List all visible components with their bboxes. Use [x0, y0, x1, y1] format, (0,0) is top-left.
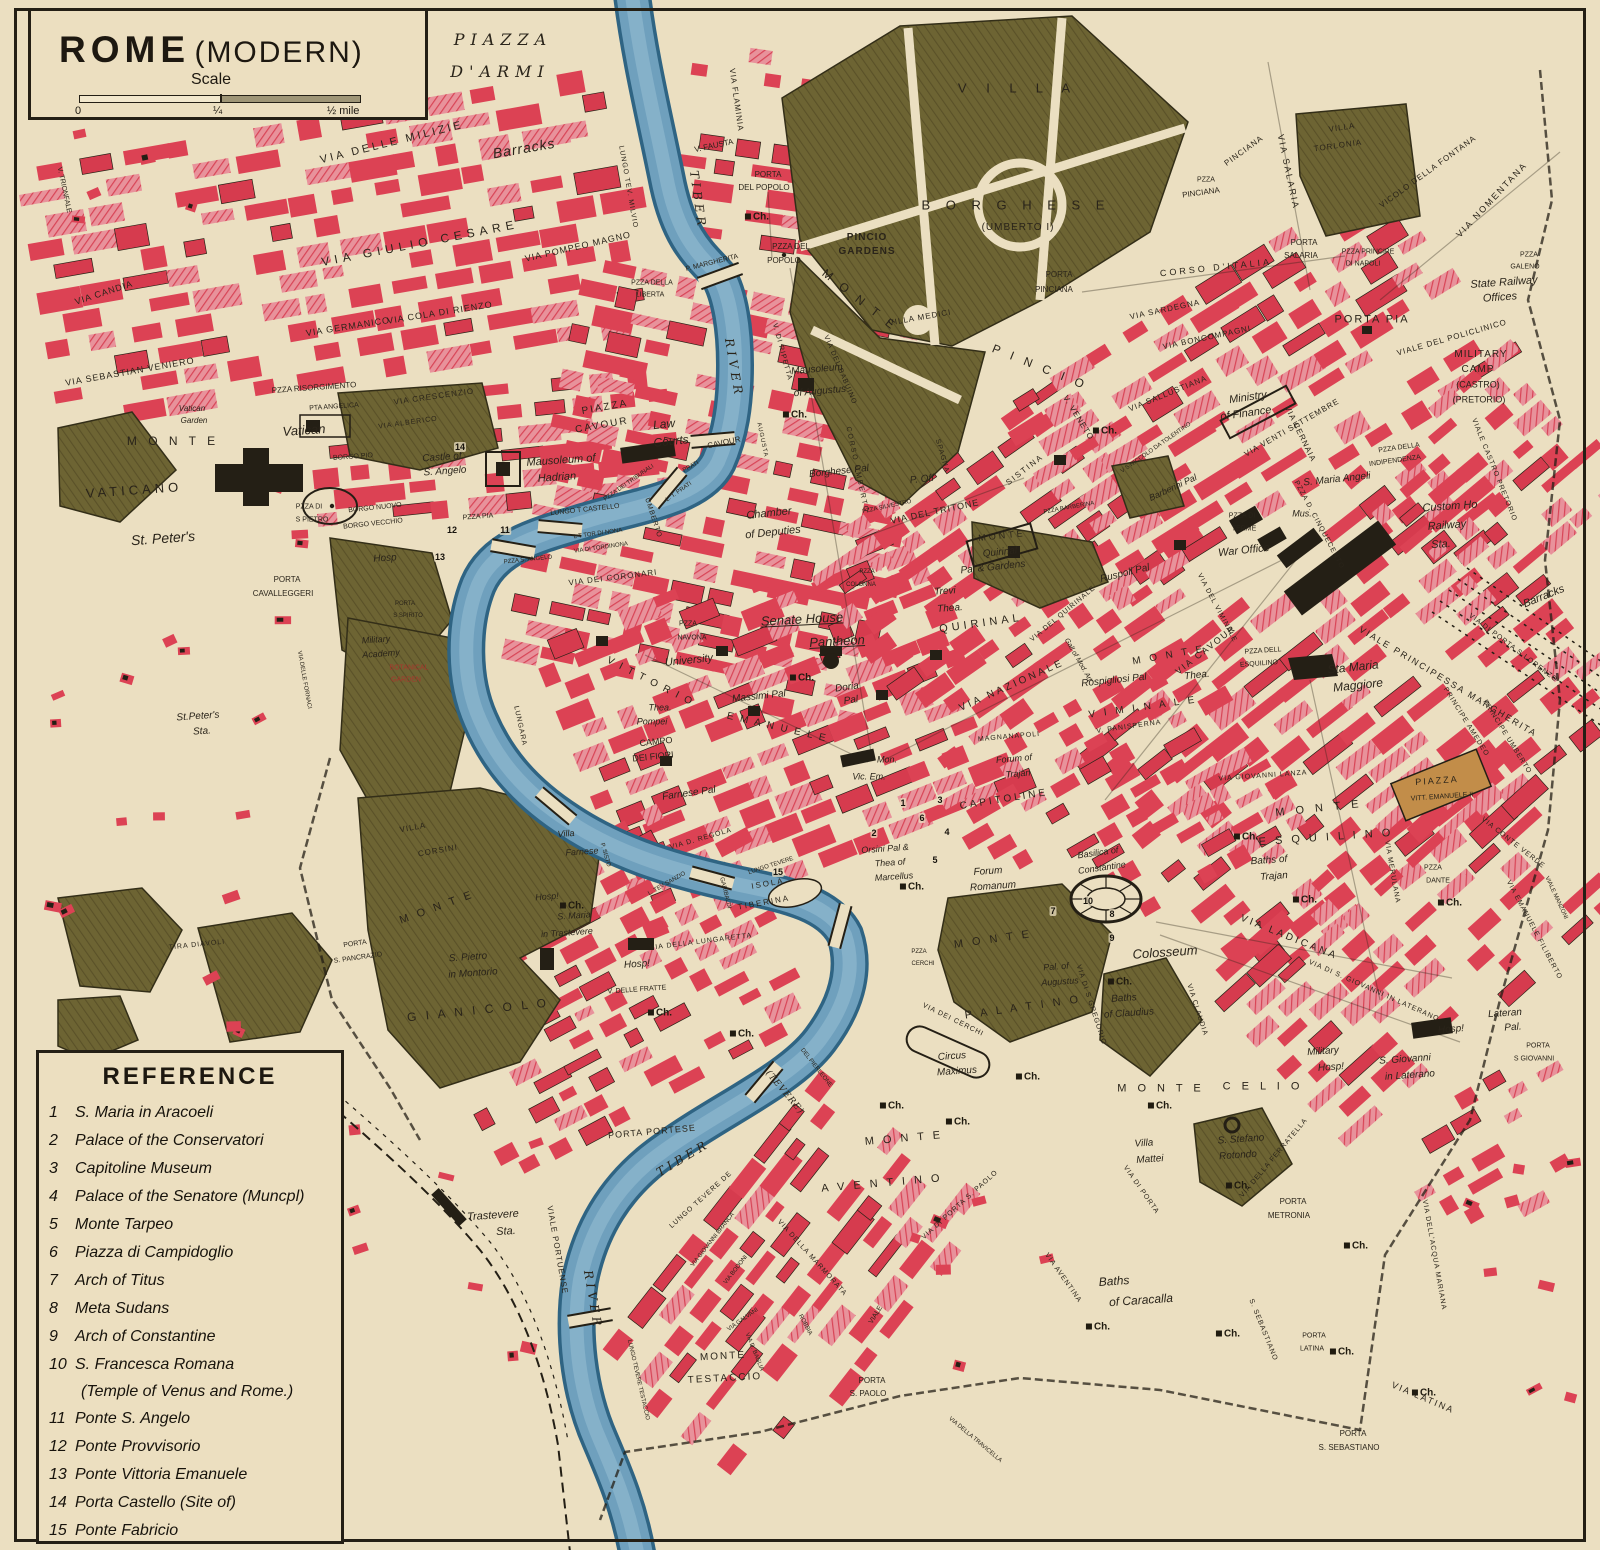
map-label: Chamber	[746, 506, 792, 522]
map-label: V. TRIONFALE	[56, 166, 73, 213]
map-label: VIA GIOVANNI LANZA	[1218, 769, 1307, 782]
map-label: PZZA S. ANGELO	[503, 554, 552, 565]
church-mark: Ch.	[790, 673, 814, 684]
map-label: VIA DELL'ACQUA MARIANA	[1421, 1199, 1447, 1311]
map-label: Villa	[1134, 1138, 1153, 1149]
map-label: Thea.	[648, 704, 671, 713]
map-label: PRATI	[682, 460, 700, 474]
map-label: PZZA	[859, 569, 874, 575]
map-label: VIA CLAUDIA	[1185, 983, 1208, 1037]
map-label: PORTA	[1291, 239, 1318, 247]
map-label: VIA DELLE FORNACI	[296, 651, 312, 710]
map-label: PZZA	[1424, 865, 1442, 872]
map-label: PZZA DEL	[772, 243, 810, 251]
map-label: VIA GALVANI	[726, 1307, 759, 1333]
map-label: Hosp!	[1318, 1062, 1345, 1074]
reference-item: 15Ponte Fabricio	[49, 1517, 331, 1545]
map-label: LIBERTA	[636, 292, 665, 299]
map-label: in Trastevere	[541, 927, 593, 940]
church-mark: Ch.	[1148, 1101, 1172, 1112]
map-label: AUGUSTA	[755, 422, 768, 458]
map-label: Hosp!	[535, 892, 559, 903]
church-mark: Ch.	[648, 1008, 672, 1019]
reference-item-number: 8	[49, 1295, 75, 1323]
map-label: St. Peter's	[131, 529, 196, 547]
map-label: Baths of	[1250, 855, 1287, 868]
map-label: P A L A T I N O	[964, 994, 1082, 1021]
reference-item: 11Ponte S. Angelo	[49, 1405, 331, 1433]
map-label: CAVOUR	[707, 436, 742, 451]
map-label: St.Peter's	[176, 711, 220, 724]
map-label: Basilica of	[1077, 846, 1119, 861]
map-label: V. DI RIPETTA	[771, 323, 793, 382]
map-label: B O R G H E S E	[922, 199, 1111, 212]
scale-label: Scale	[191, 71, 231, 89]
map-label: D'ARMI	[450, 64, 550, 80]
map-label: Hosp	[373, 553, 397, 565]
map-label: Trajan	[1260, 871, 1288, 883]
map-label: PORTA	[343, 939, 367, 949]
map-label: P. MARGHERITA	[685, 253, 739, 273]
map-label: Courts	[653, 433, 689, 449]
map-label: Mon.	[877, 756, 897, 765]
reference-item-label: Porta Castello (Site of)	[75, 1489, 331, 1517]
map-label: METRONIA	[1268, 1212, 1310, 1220]
map-label: Military	[1307, 1046, 1339, 1058]
map-label: S SPIRITO	[393, 613, 423, 619]
map-label: S. Pietro	[449, 952, 488, 965]
church-mark: Ch.	[900, 882, 924, 893]
map-label: S. SEBASTIANO	[1319, 1444, 1380, 1452]
map-label: Military	[361, 635, 390, 646]
map-label: Lateran	[1488, 1008, 1523, 1020]
reference-box: REFERENCE 1S. Maria in Aracoeli2Palace o…	[36, 1050, 344, 1544]
map-label: PZZA	[911, 949, 926, 955]
map-label: POPOLO	[767, 257, 801, 265]
map-label: VIA POMPEO MAGNO	[524, 230, 632, 263]
map-label: COLONNA	[846, 582, 876, 588]
map-label: S. Maria	[557, 910, 591, 921]
map-label: Trajan	[1005, 768, 1031, 779]
scale-tick-half-mile: ½ mile	[327, 105, 359, 117]
map-label: Barberini Pal	[1148, 473, 1199, 503]
map-label: S. PAOLO	[850, 1390, 887, 1398]
map-label: TIBER	[688, 170, 708, 230]
reference-item: 5Monte Tarpeo	[49, 1211, 331, 1239]
reference-item-label: S. Francesca Romana	[75, 1351, 331, 1379]
map-label: VIA GERMANICO	[305, 316, 390, 338]
church-mark: Ch.	[1086, 1322, 1110, 1333]
map-label: PZZA RISORGIMENTO	[271, 381, 356, 395]
map-label: DEL PIERLEONE	[799, 1047, 833, 1088]
map-label: Trevi	[934, 586, 956, 597]
map-label: Constantine	[1078, 860, 1127, 876]
map-label: VIA NAZIONALE	[958, 658, 1066, 714]
map-label: M O N T E	[1117, 1084, 1205, 1095]
map-label: VILLA MEDICI	[888, 309, 952, 328]
reference-item: 3Capitoline Museum	[49, 1155, 331, 1183]
map-label: S. SEBASTIANO	[1247, 1298, 1278, 1362]
map-label: Pal	[843, 695, 859, 707]
reference-item: 1S. Maria in Aracoeli	[49, 1099, 331, 1127]
map-label: VIA DI S. GIOVANNI IN LATERANO	[1308, 959, 1441, 1023]
map-label: L T TOR DI NONA	[573, 528, 622, 541]
reference-item-number: 7	[49, 1267, 75, 1295]
map-label: Vatican	[282, 422, 326, 438]
map-label: LUNGO T CASTELLO	[550, 503, 620, 517]
map-label: (UMBERTO I)	[982, 223, 1055, 233]
map-label: Forum of	[996, 753, 1033, 765]
map-label: Forum	[973, 866, 1003, 878]
map-label: P I N C I O	[991, 342, 1090, 391]
map-label: Castle of	[422, 452, 462, 465]
map-label: of Claudius	[1104, 1007, 1155, 1020]
map-label: in Laterano	[1385, 1069, 1436, 1082]
map-label: VIA SEBASTIAN VENIERO	[65, 356, 196, 388]
reference-item: 9Arch of Constantine	[49, 1323, 331, 1351]
reference-number-marker: 13	[434, 552, 446, 562]
map-label: L. TEV SANZIO	[647, 871, 687, 897]
map-label: Sta.	[496, 1226, 516, 1238]
map-label: of Finance	[1220, 405, 1272, 423]
map-label: VIALE	[868, 1305, 884, 1326]
map-label: M O N T E	[1275, 799, 1363, 819]
map-label: PINCIANA	[1182, 186, 1221, 199]
map-label: PIAZZA	[454, 32, 552, 48]
map-label: E S Q U I L I N O	[1258, 828, 1393, 848]
reference-number-marker: 14	[454, 442, 466, 452]
map-label: LUNGO TEVERE TESTACCIO	[626, 1339, 650, 1421]
map-label: V. PANISPERNA	[1096, 719, 1162, 735]
map-label: PZZA DELLA	[1378, 442, 1420, 455]
map-label: CAVALLEGGERI	[253, 590, 314, 598]
map-label: VIA FLAMINIA	[728, 68, 745, 132]
map-label: VIA BONCOMPAGNI	[1162, 325, 1252, 352]
map-label: M O N T E	[953, 929, 1032, 951]
map-label: VIA COLA DI RIENZO	[387, 300, 494, 326]
map-label: PZZA DI	[1229, 513, 1255, 520]
church-mark: Ch.	[730, 1029, 754, 1040]
map-label: VIA CRESCENZIO	[393, 387, 474, 406]
map-label: BORGO VECCHIO	[343, 517, 403, 530]
map-label: S. Maria Angeli	[1303, 472, 1371, 489]
map-label: Thea of	[874, 857, 905, 868]
map-label: S. Angelo	[423, 466, 467, 479]
reference-item-label: Arch of Titus	[75, 1267, 331, 1295]
church-mark: Ch.	[1438, 898, 1462, 909]
church-mark: Ch.	[1344, 1241, 1368, 1252]
map-label: Maximus	[937, 1066, 978, 1079]
map-label: VIA DEI CORONARI	[568, 569, 658, 588]
reference-item-label: Ponte Vittoria Emanuele	[75, 1461, 331, 1489]
map-title: ROME	[59, 29, 190, 70]
reference-item: 4Palace of the Senatore (Muncpl)	[49, 1183, 331, 1211]
map-label: ISOLA	[751, 877, 785, 891]
reference-number-marker: 12	[446, 525, 458, 535]
map-label: TESTACCIO	[688, 1372, 763, 1386]
map-label: ROBBIA	[797, 1314, 813, 1337]
map-label: Pal. of	[1043, 962, 1069, 973]
reference-item-label: Palace of the Conservatori	[75, 1127, 331, 1155]
map-label: PINCIANA	[1223, 134, 1265, 167]
map-label: PTA ANGELICA	[309, 402, 359, 412]
map-label: Thea.	[937, 603, 963, 615]
map-label: CAMP	[1462, 365, 1495, 375]
map-label: S. Stefano	[1217, 1133, 1264, 1146]
church-mark: Ch.	[1016, 1072, 1040, 1083]
map-label: V S NICCOLO DA TOLENTINO	[1120, 421, 1192, 474]
map-label: NAVONA	[677, 635, 706, 642]
map-label: Quirinal	[982, 546, 1017, 560]
map-label: PZZA DELL	[1244, 646, 1281, 656]
map-label: TERME	[1232, 526, 1257, 533]
reference-item-label: Monte Tarpeo	[75, 1211, 331, 1239]
reference-number-marker: 2	[870, 828, 877, 838]
reference-number-marker: 1	[899, 798, 906, 808]
map-label: PZZA DI	[296, 504, 322, 511]
map-label: V. VENETO	[1061, 394, 1095, 441]
map-label: PINCIANA	[1035, 286, 1073, 294]
church-mark: Ch.	[1226, 1181, 1250, 1192]
reference-item-label: Arch of Constantine	[75, 1323, 331, 1351]
map-label: Garden	[181, 417, 208, 425]
map-label: QUIRINAL	[939, 613, 1024, 636]
map-label: VIA SARDEGNA	[1129, 299, 1201, 322]
map-label: VIA GIOVANNI BRANCA	[690, 1212, 736, 1268]
reference-item-number: 10	[49, 1351, 75, 1379]
map-label: Barracks	[1522, 584, 1566, 610]
map-label: V. DELLE FRATTE	[607, 984, 666, 995]
scale-tick-0: 0	[75, 105, 81, 117]
map-label: Pompei	[637, 718, 668, 727]
map-label: Rotondo	[1219, 1150, 1257, 1163]
map-label: of Caracalla	[1109, 1292, 1174, 1308]
map-label: M O N T E	[127, 435, 219, 447]
map-label: Ruspoli Pal	[1099, 563, 1151, 585]
map-label: VIALE PORTUENSE	[545, 1205, 568, 1295]
map-label: GARDENS	[838, 247, 895, 257]
map-label: DEI FIORI	[632, 750, 674, 763]
map-label: PZZA BARBERINA	[1043, 501, 1095, 516]
map-label: PIAZZA	[581, 399, 629, 417]
map-label: VIA BODONI	[723, 1254, 749, 1285]
map-label: Farnese Pal	[662, 785, 717, 802]
map-label: VIA DELLA MARMORATA	[776, 1218, 848, 1297]
map-label: Senate House	[761, 610, 844, 627]
reference-item-number: 13	[49, 1461, 75, 1489]
map-label: BORGO PIO	[333, 452, 373, 462]
reference-heading: REFERENCE	[49, 1063, 331, 1091]
map-label: CERCHI	[911, 961, 934, 967]
reference-number-marker: 9	[1108, 933, 1115, 943]
map-label: Villa	[557, 829, 574, 839]
map-label: S PIETRO	[296, 517, 329, 524]
map-label: Baths	[1111, 993, 1137, 1005]
map-label: PORTA	[1046, 271, 1073, 279]
reference-item: 14Porta Castello (Site of)	[49, 1489, 331, 1517]
map-label: (TEVERE)	[763, 1069, 805, 1116]
reference-number-marker: 5	[931, 855, 938, 865]
map-label: MILITARY	[1454, 350, 1507, 360]
reference-item-label: Ponte S. Angelo	[75, 1405, 331, 1433]
map-label: PZZA	[1197, 177, 1215, 184]
map-label: Pal & Gardens	[960, 560, 1026, 577]
map-label: DANTE	[1426, 878, 1450, 885]
map-label: Circus	[938, 1051, 967, 1063]
map-label: Sta.	[1431, 539, 1451, 551]
map-label: L. T. PRATI	[665, 481, 693, 503]
map-label: PORTA PORTESE	[608, 1124, 696, 1141]
map-label: VIA D. REGOLA	[669, 827, 732, 851]
map-label: LUNGARA	[512, 705, 527, 746]
map-label: E M A N U E L E	[726, 712, 829, 745]
reference-item-label: Ponte Fabricio	[75, 1517, 331, 1545]
map-label: PZZA PRINCIPE	[1342, 249, 1395, 256]
map-label: VIA SALLUSTIANA	[1128, 375, 1209, 414]
map-label: UMBERTO	[643, 497, 663, 539]
map-label: P. Off	[909, 474, 934, 486]
map-label: PINCIO	[847, 233, 887, 243]
map-label: PORTA	[755, 171, 782, 179]
map-label: SISTINA	[1005, 453, 1045, 487]
map-label: MONTE	[978, 529, 1026, 543]
map-title-line: ROME (MODERN)	[59, 29, 364, 71]
map-label: PZZA	[679, 621, 697, 628]
reference-number-marker: 7	[1049, 906, 1056, 916]
reference-number-marker: 15	[772, 867, 784, 877]
map-label: Baths	[1098, 1274, 1129, 1288]
map-label: DEL POPOLO	[738, 184, 789, 192]
map-label: DI NAPOLI	[1346, 261, 1381, 268]
reference-item: 8Meta Sudans	[49, 1295, 331, 1323]
reference-item-label: Piazza di Campidoglio	[75, 1239, 331, 1267]
map-label: Sta.	[193, 726, 211, 737]
map-label: Colosseum	[1132, 943, 1198, 961]
map-label: VICOLO DELLA FONTANA	[1378, 134, 1478, 209]
map-label: (PRETORIO)	[1453, 396, 1506, 405]
reference-number-marker: 8	[1108, 909, 1115, 919]
map-label: Mausoleum of	[526, 453, 596, 469]
map-label: Massimi Pal	[732, 689, 787, 705]
reference-number-marker: 6	[918, 813, 925, 823]
map-label: VIALE MANZONI	[1543, 876, 1568, 921]
map-label: CAVOUR	[575, 416, 630, 435]
map-label: VIA DELLE MILIZIE	[319, 120, 465, 166]
map-label: Hadrian	[537, 471, 576, 485]
map-label: S. PANCRAZIO	[333, 951, 382, 965]
map-label: Pal.	[1504, 1022, 1522, 1033]
map-label: Hosp!	[624, 959, 651, 971]
map-label: VIA CONTE VERDE	[1480, 816, 1546, 870]
map-label: RIVER	[582, 1269, 604, 1330]
map-label: Doria	[834, 681, 859, 694]
map-label: RIVER	[723, 337, 745, 398]
map-label: VIA ALBERICO	[378, 415, 438, 430]
map-label: Railway	[1427, 519, 1466, 533]
map-label: VILLA	[399, 822, 427, 835]
church-mark: Ch.	[1216, 1329, 1240, 1340]
map-label: (CASTRO)	[1456, 381, 1500, 390]
map-label: Hosp!	[1438, 1024, 1465, 1036]
map-label: PZZA PIA	[462, 512, 493, 521]
reference-item-number: 14	[49, 1489, 75, 1517]
reference-item-number: 3	[49, 1155, 75, 1183]
map-label: Mattei	[1136, 1154, 1164, 1166]
church-mark: Ch.	[1412, 1388, 1436, 1399]
map-label: Pantheon	[809, 633, 865, 649]
church-mark: Ch.	[1108, 977, 1132, 988]
map-label: Barracks	[492, 136, 557, 161]
reference-item-label: Capitoline Museum	[75, 1155, 331, 1183]
reference-item-number: 11	[49, 1405, 75, 1433]
map-label: PORTA	[274, 576, 301, 584]
map-label: Vatican	[179, 405, 205, 413]
reference-item: 10S. Francesca Romana	[49, 1351, 331, 1379]
map-subtitle: (MODERN)	[194, 36, 363, 69]
reference-item-number: 1	[49, 1099, 75, 1127]
reference-number-marker: 4	[943, 827, 950, 837]
map-label: PZZA	[1520, 252, 1538, 259]
map-label: VIA SALARIA	[1276, 134, 1301, 211]
church-mark: Ch.	[1330, 1347, 1354, 1358]
church-mark: Ch.	[783, 410, 807, 421]
title-box: ROME (MODERN) Scale 0 ¼ ½ mile	[28, 8, 428, 120]
map-label: VIA DELLA TRAVICELLA	[947, 1416, 1003, 1464]
map-label: Offices	[1483, 291, 1518, 304]
map-label: VIA CANDIA	[74, 279, 134, 306]
map-label: VIA NOMENTANA	[1455, 161, 1529, 240]
reference-item-label: Palace of the Senatore (Muncpl)	[75, 1183, 331, 1211]
reference-number-marker: 10	[1082, 896, 1094, 906]
map-label: Ministry	[1228, 390, 1267, 406]
reference-item: 6Piazza di Campidoglio	[49, 1239, 331, 1267]
church-mark: Ch.	[1093, 426, 1117, 437]
map-label: PORTA	[395, 601, 415, 607]
map-label: Law	[652, 417, 675, 431]
map-label: in Montorio	[448, 967, 498, 980]
map-label: S GIOVANNI	[1514, 1056, 1554, 1063]
map-label: VIA GIULIO CESARE	[321, 218, 520, 268]
map-label: S. Giovanni	[1379, 1053, 1431, 1067]
map-label: INDIPENDENZA	[1369, 454, 1422, 468]
map-label: PORTA	[859, 1377, 886, 1385]
map-label: PZZA DELLA	[631, 280, 673, 287]
reference-number-marker: 11	[499, 525, 511, 535]
map-label: GALENO	[1510, 264, 1539, 271]
map-label: of Deputies	[745, 525, 802, 542]
map-label: CORSO D'ITALIA	[1160, 258, 1273, 279]
map-label: M O N T E	[398, 889, 476, 926]
reference-item-number: 12	[49, 1433, 75, 1461]
map-label: MONTE	[700, 1351, 747, 1363]
map-label: Vic. Em.	[852, 773, 885, 782]
map-label: VITT. EMANUELE II	[1411, 791, 1474, 802]
reference-item-label: S. Maria in Aracoeli	[75, 1099, 331, 1127]
map-label: Augustus	[1041, 976, 1079, 988]
map-label: PIAZZA	[1415, 775, 1459, 787]
map-label: VIA DEL QUIRINALE	[1029, 585, 1097, 644]
map-label: TIBERINA	[737, 894, 790, 911]
map-label: Custom Ho	[1422, 500, 1478, 515]
map-label: SALARIA	[1284, 252, 1318, 260]
map-label: Academy	[362, 648, 400, 660]
map-label: TIRA DIAVOLI	[168, 939, 225, 952]
reference-number-marker: 3	[936, 795, 943, 805]
map-label: TORLONIA	[1313, 139, 1362, 154]
map-label: GARIBALDI	[718, 877, 732, 910]
map-label: War Office	[1218, 543, 1271, 559]
map-label: A V E N T I N O	[821, 1173, 943, 1195]
